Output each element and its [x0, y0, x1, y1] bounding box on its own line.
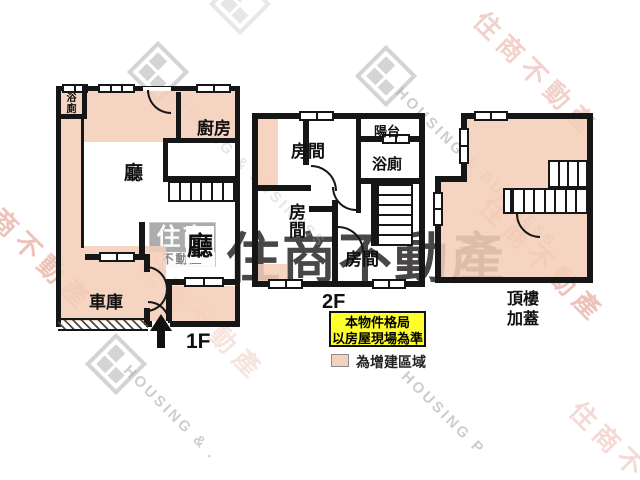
stairs: [168, 181, 235, 202]
room-label-bedroom: 房間: [291, 137, 325, 162]
roof-addition-area: [441, 182, 466, 277]
room-label-living: 廳: [186, 226, 214, 263]
disclaimer-line1: 本物件格局: [331, 315, 424, 331]
room-label-bedroom: 房間: [283, 203, 308, 239]
window: [474, 111, 508, 121]
disclaimer-note: 本物件格局 以房屋現場為準: [329, 311, 426, 347]
window: [459, 128, 469, 164]
wall: [252, 113, 425, 119]
stairs: [512, 188, 588, 214]
wall: [81, 118, 84, 248]
diamond-logo-icon: [209, 0, 271, 35]
floor-label-roof-line2: 加蓋: [507, 305, 539, 329]
garage-door-hatch: [58, 318, 148, 331]
wall: [139, 222, 145, 257]
wall: [252, 113, 258, 287]
window: [98, 84, 135, 93]
stairs: [548, 160, 588, 188]
wall: [309, 206, 338, 212]
floor-label-1f: 1F: [186, 330, 211, 354]
floorplan-image: 住商不動產 住商 不動產 HOUSING & BUSINESS HOUSING …: [0, 0, 640, 480]
wall: [170, 321, 240, 327]
f2-addition-area: [258, 119, 278, 186]
brand-red-watermark: 住商不動產: [562, 392, 640, 480]
window: [99, 252, 135, 262]
window: [372, 279, 406, 289]
f1-addition-area: [58, 142, 82, 246]
room-label-garage: 車庫: [89, 288, 123, 313]
room-label-balcony: 陽台: [374, 121, 400, 140]
entrance-arrow-icon: [150, 314, 172, 331]
window: [196, 84, 231, 93]
wall: [56, 86, 61, 327]
stairs: [377, 184, 413, 246]
wall: [176, 92, 181, 143]
housing-business-watermark: HOUSING & .: [120, 362, 221, 463]
window: [433, 192, 443, 226]
window: [184, 277, 224, 287]
entrance-arrow-icon: [157, 330, 165, 348]
wall: [435, 277, 593, 283]
stairs: [503, 188, 512, 214]
legend-label: 為增建區域: [356, 352, 426, 372]
room-label-bedroom: 房間: [345, 245, 379, 270]
f1-addition-area: [170, 286, 238, 321]
wall: [235, 86, 240, 327]
wall: [257, 185, 311, 191]
window: [268, 279, 303, 289]
room-label-living: 廳: [124, 158, 143, 185]
room-label-bath: 浴廁: [62, 92, 77, 114]
legend-swatch: [331, 354, 349, 367]
housing-business-watermark: HOUSING P: [398, 368, 489, 459]
disclaimer-line2: 以房屋現場為準: [331, 331, 424, 347]
room-label-kitchen: 廚房: [197, 114, 231, 139]
room-label-bath: 浴廁: [372, 153, 402, 174]
